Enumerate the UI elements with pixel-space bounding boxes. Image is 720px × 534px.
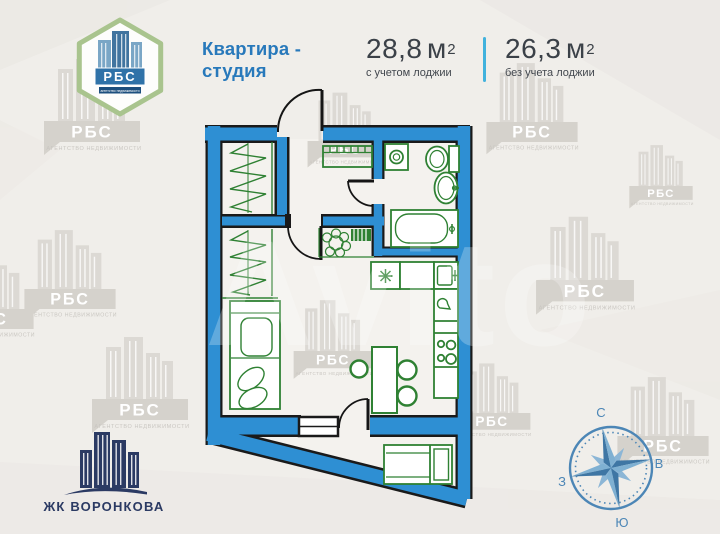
- area-unit: м: [566, 33, 585, 64]
- floorplan-page: РБС АГЕНТСТВО НЕДВИЖИМОСТИ: [0, 0, 720, 534]
- area-unit-sup: 2: [447, 41, 455, 58]
- title-line-1: Квартира -: [202, 38, 301, 60]
- rbs-watermark: [629, 145, 693, 208]
- page-title: Квартира - студия: [202, 38, 301, 82]
- title-line-2: студия: [202, 60, 301, 82]
- area-unit-sup: 2: [586, 41, 594, 58]
- stool: [398, 387, 417, 406]
- area-with-loggia-caption: с учетом лоджии: [366, 67, 455, 79]
- loggia-window: [299, 417, 338, 436]
- toilet-icon: [426, 146, 459, 172]
- area-without-loggia: 26,3 м2 без учета лоджии: [505, 33, 595, 79]
- rbs-watermark: [24, 230, 117, 321]
- area-unit: м: [427, 33, 446, 64]
- compass-east-label: В: [655, 456, 664, 471]
- area-without-loggia-value: 26,3: [505, 33, 562, 64]
- compass-south-label: Ю: [615, 515, 628, 530]
- area-without-loggia-caption: без учета лоджии: [505, 67, 595, 79]
- area-with-loggia-value: 28,8: [366, 33, 423, 64]
- entrance-door: [278, 90, 322, 132]
- rbs-watermark: [92, 337, 190, 433]
- compass-north-label: С: [596, 405, 605, 420]
- agency-logo-tagline: агентство недвижимости: [100, 89, 139, 93]
- agency-logo: РБС агентство недвижимости: [79, 20, 160, 114]
- rbs-watermark: [617, 377, 710, 468]
- loggia-bench: [384, 445, 452, 484]
- area-divider: [483, 37, 486, 82]
- complex-logo-buildings: [80, 432, 139, 488]
- floorplan-canvas: РБС АГЕНТСТВО НЕДВИЖИМОСТИ: [0, 0, 720, 534]
- washing-machine-icon: [385, 144, 408, 170]
- agency-logo-text: РБС: [103, 69, 136, 84]
- avito-watermark: Avito: [205, 209, 594, 377]
- complex-logo-text: ЖК ВОРОНКОВА: [42, 499, 164, 514]
- compass-west-label: З: [558, 474, 566, 489]
- area-with-loggia: 28,8 м2 с учетом лоджии: [366, 33, 455, 79]
